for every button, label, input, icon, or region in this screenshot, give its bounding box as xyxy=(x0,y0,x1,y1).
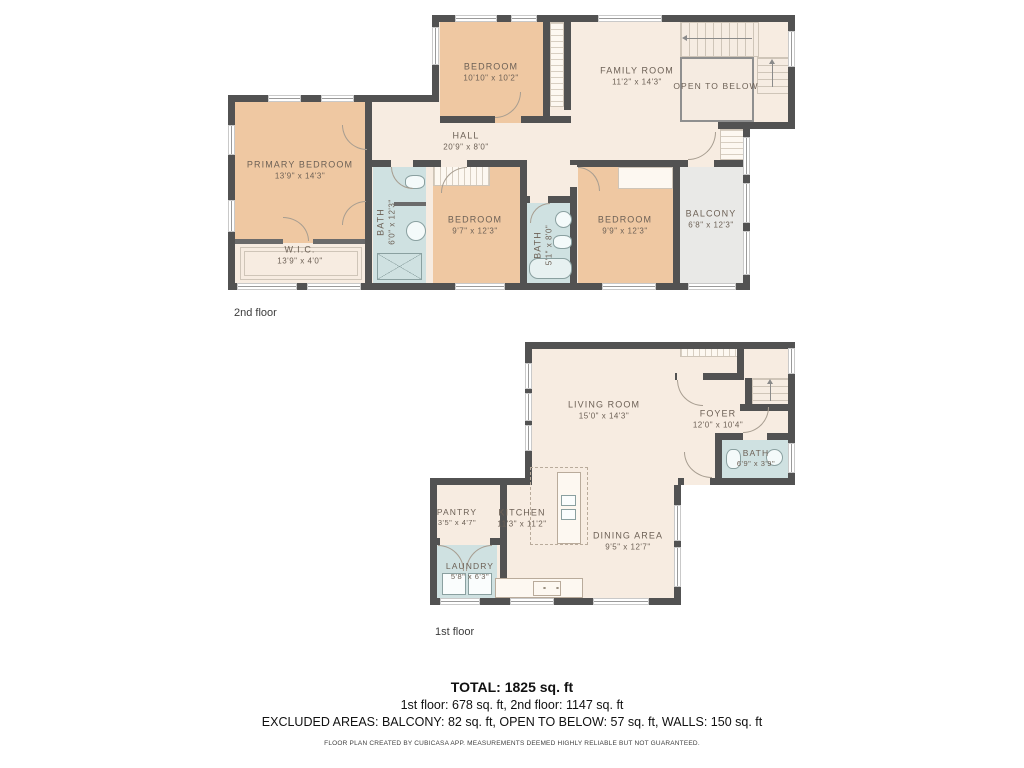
window xyxy=(237,283,297,290)
sink-icon xyxy=(555,211,572,228)
window xyxy=(228,200,235,232)
window xyxy=(743,137,750,175)
closet-bedroom-right xyxy=(618,167,673,189)
door-gap xyxy=(441,160,467,167)
stairs-arrow-head xyxy=(682,35,687,41)
room-label: LAUNDRY 5'8" x 6'3" xyxy=(446,561,494,581)
kitchen-counter xyxy=(557,472,581,544)
room-label: BATH 6'9" x 3'9" xyxy=(737,448,775,468)
room-label: PANTRY 3'5" x 4'7" xyxy=(437,507,477,527)
room-label: W.I.C. 13'9" x 4'0" xyxy=(277,245,322,266)
room-label: HALL 20'9" x 8'0" xyxy=(443,131,488,152)
floor-plan-canvas: BEDROOM 10'10" x 10'2" FAMILY ROOM 11'2"… xyxy=(0,0,1024,768)
window xyxy=(598,15,662,22)
room-label: FAMILY ROOM 11'2" x 14'3" xyxy=(600,66,674,87)
stairs-arrow-head xyxy=(769,59,775,64)
wall xyxy=(564,15,571,110)
door-gap xyxy=(530,196,548,203)
wall xyxy=(715,433,722,478)
window xyxy=(268,95,301,102)
room-label: BALCONY 6'8" x 12'3" xyxy=(686,209,737,230)
room-label: KITCHEN 11'3" x 11'2" xyxy=(497,508,546,529)
floor-label-2nd: 2nd floor xyxy=(234,307,277,319)
stairs-arrow-head xyxy=(767,379,773,384)
first-floor-plan: LIVING ROOM 15'0" x 14'3" FOYER 12'0" x … xyxy=(430,335,795,612)
door-gap xyxy=(743,433,767,440)
total-area-text: TOTAL: 1825 sq. ft xyxy=(0,679,1024,695)
window xyxy=(228,125,235,155)
room-label: DINING AREA 9'5" x 12'7" xyxy=(593,531,663,552)
door-gap xyxy=(391,160,413,167)
wall xyxy=(235,239,283,244)
wall xyxy=(577,160,680,167)
toilet-icon xyxy=(553,235,572,249)
window xyxy=(525,363,532,389)
window xyxy=(455,15,497,22)
window xyxy=(440,598,480,605)
wall xyxy=(430,478,532,485)
wall xyxy=(440,116,495,123)
door-gap xyxy=(440,538,490,545)
closet-hall xyxy=(550,22,564,107)
wall xyxy=(674,485,681,605)
window xyxy=(432,27,439,65)
wall xyxy=(313,239,365,244)
room-label: BEDROOM 10'10" x 10'2" xyxy=(463,62,518,83)
window xyxy=(307,283,361,290)
shower-icon xyxy=(377,253,422,280)
window xyxy=(525,393,532,421)
wall xyxy=(718,122,795,129)
window xyxy=(511,15,537,22)
kitchen-sink-icon xyxy=(561,509,576,520)
window xyxy=(743,231,750,275)
floor-label-1st: 1st floor xyxy=(435,626,474,638)
kitchen-sink-icon xyxy=(561,495,576,506)
excluded-areas-text: EXCLUDED AREAS: BALCONY: 82 sq. ft, OPEN… xyxy=(0,715,1024,729)
window xyxy=(688,283,736,290)
door-gap xyxy=(688,160,714,167)
room-label: FOYER 12'0" x 10'4" xyxy=(693,409,743,430)
wall xyxy=(673,160,680,283)
window xyxy=(525,425,532,451)
stairs-arrow xyxy=(772,63,773,87)
second-floor-plan: BEDROOM 10'10" x 10'2" FAMILY ROOM 11'2"… xyxy=(228,15,795,290)
window xyxy=(788,443,795,473)
window xyxy=(674,505,681,541)
door-gap xyxy=(684,478,710,485)
room-label: BATH 6'0" x 12'3" xyxy=(376,199,397,244)
door-gap xyxy=(677,373,703,380)
window xyxy=(674,547,681,587)
door-gap xyxy=(570,165,577,187)
area-summary: TOTAL: 1825 sq. ft 1st floor: 678 sq. ft… xyxy=(0,679,1024,747)
stairs-upper xyxy=(680,22,759,57)
stairs-arrow xyxy=(686,38,752,39)
stove-icon xyxy=(533,581,561,596)
wall xyxy=(521,116,571,123)
window xyxy=(510,598,554,605)
room-label: BEDROOM 9'9" x 12'3" xyxy=(598,215,652,236)
wall xyxy=(543,15,550,123)
wall xyxy=(520,160,527,283)
floor-areas-text: 1st floor: 678 sq. ft, 2nd floor: 1147 s… xyxy=(0,698,1024,712)
sink-icon xyxy=(406,221,426,241)
wall xyxy=(525,342,795,349)
window xyxy=(593,598,649,605)
wall xyxy=(394,202,426,206)
closet-linen xyxy=(720,129,745,160)
window xyxy=(788,31,795,67)
window xyxy=(743,183,750,223)
room-label: PRIMARY BEDROOM 13'9" x 14'3" xyxy=(247,160,353,181)
room-label: BEDROOM 9'7" x 12'3" xyxy=(448,215,502,236)
window xyxy=(788,348,795,374)
window xyxy=(455,283,505,290)
room-label: OPEN TO BELOW xyxy=(673,81,758,91)
window xyxy=(321,95,354,102)
stairs-arrow xyxy=(770,383,771,401)
window xyxy=(602,283,656,290)
room-label: BATH 5'1" x 8'0" xyxy=(533,225,554,265)
disclaimer-text: FLOOR PLAN CREATED BY CUBICASA APP. MEAS… xyxy=(0,740,1024,747)
room-label: LIVING ROOM 15'0" x 14'3" xyxy=(568,400,640,421)
